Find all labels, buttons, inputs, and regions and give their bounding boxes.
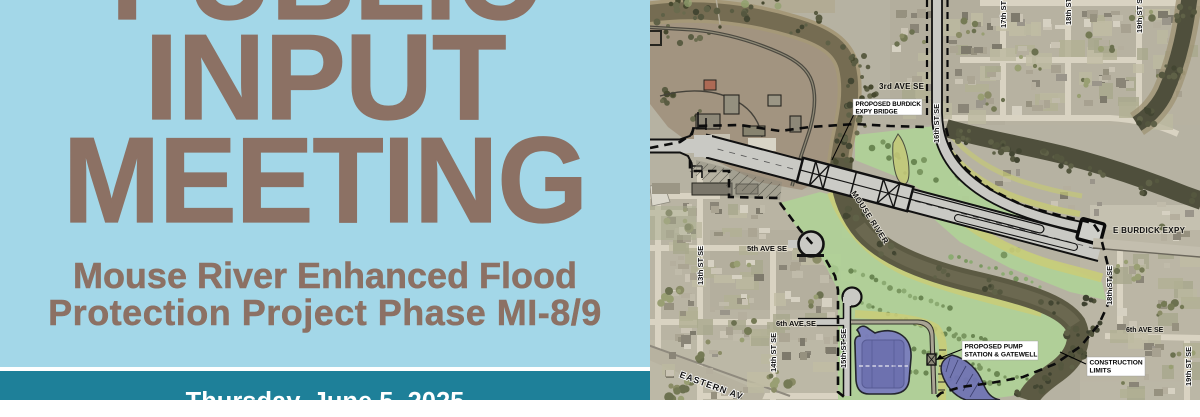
svg-text:13th ST SE: 13th ST SE: [696, 246, 705, 285]
svg-text:6th AVE SE: 6th AVE SE: [1126, 327, 1164, 334]
svg-text:LIMITS: LIMITS: [1090, 367, 1112, 374]
svg-text:3rd AVE SE: 3rd AVE SE: [879, 82, 925, 91]
svg-text:E BURDICK EXPY: E BURDICK EXPY: [1113, 226, 1186, 235]
svg-text:18th ST SE: 18th ST SE: [1064, 0, 1073, 25]
svg-text:6th AVE SE: 6th AVE SE: [776, 319, 816, 328]
svg-text:PROPOSED BURDICK: PROPOSED BURDICK: [856, 101, 922, 108]
svg-text:EXPY BRIDGE: EXPY BRIDGE: [856, 109, 898, 116]
svg-text:5th AVE SE: 5th AVE SE: [747, 244, 787, 253]
svg-text:STATION & GATEWELL: STATION & GATEWELL: [965, 351, 1038, 358]
svg-text:PROPOSED PUMP: PROPOSED PUMP: [965, 344, 1024, 351]
svg-text:16th ST SE: 16th ST SE: [932, 104, 941, 143]
svg-text:14th ST SE: 14th ST SE: [769, 333, 778, 372]
svg-text:15th ST SE: 15th ST SE: [839, 329, 848, 368]
svg-text:17th ST SE: 17th ST SE: [999, 0, 1008, 28]
svg-text:18th ST SE: 18th ST SE: [1105, 266, 1114, 305]
svg-text:CONSTRUCTION: CONSTRUCTION: [1090, 360, 1143, 367]
svg-text:19th ST SE: 19th ST SE: [1135, 0, 1144, 33]
svg-text:19th ST SE: 19th ST SE: [1184, 347, 1193, 386]
